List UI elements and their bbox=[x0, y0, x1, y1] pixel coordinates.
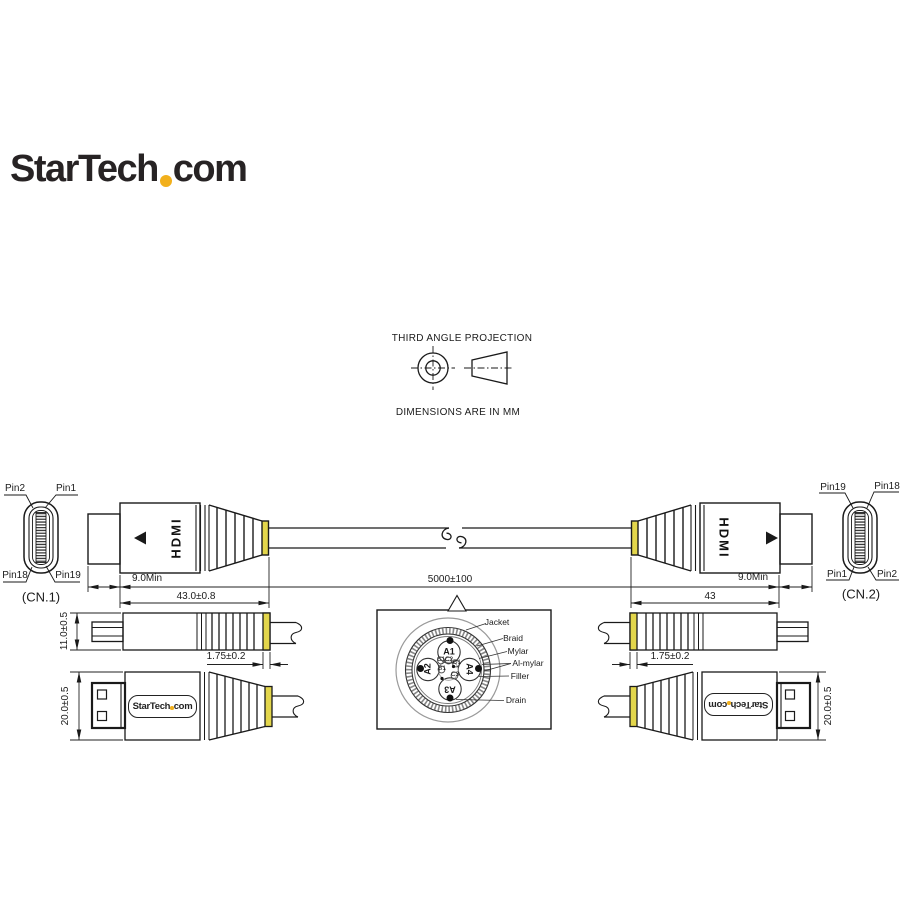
layer-label-braid: Braid bbox=[503, 634, 523, 643]
orientation-arrow-right bbox=[766, 532, 778, 545]
dim-connector-length-left: 43.0±0.8 bbox=[177, 592, 216, 602]
drawing-linework bbox=[0, 0, 900, 900]
pair-label-a3: A3 bbox=[444, 685, 456, 694]
cn1-pin2-label: Pin2 bbox=[5, 484, 25, 494]
cn1-pin18-label: Pin18 bbox=[2, 571, 28, 581]
cn2-pin1-label: Pin1 bbox=[827, 570, 847, 580]
strain-band-left bbox=[262, 521, 269, 555]
cn1-pin19-label: Pin19 bbox=[55, 571, 81, 581]
layer-label-mylar: Mylar bbox=[508, 647, 529, 656]
cn2-pin19-label: Pin19 bbox=[820, 483, 846, 493]
connector-logo-dot-icon bbox=[727, 701, 731, 705]
layer-label-al-mylar: Al-mylar bbox=[512, 659, 543, 668]
connector-logo-text-suffix: com bbox=[174, 702, 193, 712]
connector-logo-text: StarTech bbox=[133, 702, 171, 712]
connector-logo-right: StarTechcom bbox=[704, 693, 773, 716]
hdmi-text-right: HDMI bbox=[718, 517, 731, 558]
dim-band-width-right: 1.75±0.2 bbox=[651, 652, 690, 662]
layer-label-filler: Filler bbox=[511, 672, 529, 681]
cn1-face bbox=[3, 495, 80, 582]
connector-logo-left: StarTechcom bbox=[128, 695, 197, 718]
cn2-pin2-label: Pin2 bbox=[877, 570, 897, 580]
cable-assembly-side-view bbox=[88, 503, 812, 573]
dim-connector-length-right: 43 bbox=[704, 592, 715, 602]
section-pointer bbox=[448, 596, 466, 612]
orientation-arrow-left bbox=[134, 532, 146, 545]
cn2-face bbox=[819, 492, 899, 580]
projection-title: THIRD ANGLE PROJECTION bbox=[392, 334, 533, 344]
hdmi-text-left: HDMI bbox=[170, 517, 183, 558]
wire-label-d1: D1 bbox=[453, 660, 461, 667]
connector-logo-text-suffix: com bbox=[709, 700, 728, 710]
pair-label-a2: A2 bbox=[424, 663, 433, 675]
startech-logo: StarTech com bbox=[10, 150, 246, 188]
dim-height-top-view: 11.0±0.5 bbox=[60, 612, 70, 650]
cable-break-symbol bbox=[442, 528, 451, 540]
dim-tip-length-left: 9.0Min bbox=[132, 574, 162, 584]
pair-label-a4: A4 bbox=[465, 663, 474, 675]
wire-label-b1: B1 bbox=[438, 666, 446, 673]
dim-cable-length: 5000±100 bbox=[428, 575, 472, 585]
cn2-label: (CN.2) bbox=[842, 588, 880, 601]
wire-label-c3: C3 bbox=[451, 672, 459, 679]
cn2-pin18-label: Pin18 bbox=[874, 482, 900, 492]
layer-label-jacket: Jacket bbox=[485, 618, 510, 627]
third-angle-symbol bbox=[411, 346, 514, 390]
logo-text-suffix: com bbox=[173, 150, 247, 188]
technical-drawing-page: StarTech com THIRD ANGLE PROJECTION DIME… bbox=[0, 0, 900, 900]
logo-dot-icon bbox=[160, 175, 172, 187]
logo-text-main: StarTech bbox=[10, 150, 158, 188]
drain-wire-dot bbox=[447, 637, 454, 644]
connector-logo-text: StarTech bbox=[731, 700, 769, 710]
dim-tip-length-right: 9.0Min bbox=[738, 573, 768, 583]
cn1-pin1-label: Pin1 bbox=[56, 484, 76, 494]
cn1-label: (CN.1) bbox=[22, 591, 60, 604]
strain-band-right bbox=[632, 521, 639, 555]
dim-height-side-view-left: 20.0±0.5 bbox=[61, 687, 71, 726]
units-note: DIMENSIONS ARE IN MM bbox=[396, 408, 520, 418]
dim-band-width-left: 1.75±0.2 bbox=[207, 652, 246, 662]
layer-label-drain: Drain bbox=[506, 696, 526, 705]
dim-height-side-view-right: 20.0±0.5 bbox=[824, 687, 834, 726]
